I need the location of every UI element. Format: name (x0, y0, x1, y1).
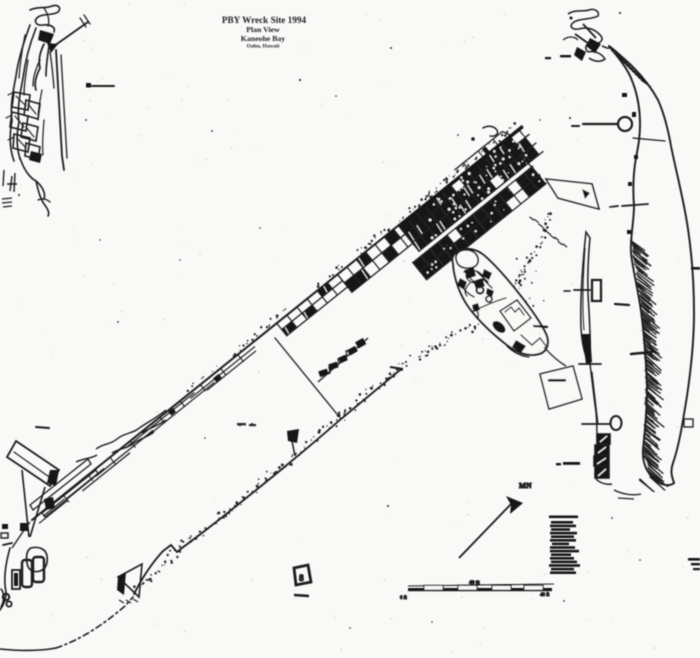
svg-text:Oahu, Hawaii: Oahu, Hawaii (247, 44, 280, 50)
svg-text:40 ft: 40 ft (540, 593, 550, 598)
svg-text:0 ft: 0 ft (400, 596, 407, 601)
svg-text:MN: MN (519, 481, 532, 490)
svg-text:Plan View: Plan View (246, 25, 280, 34)
svg-text:Kaneohe Bay: Kaneohe Bay (241, 34, 286, 43)
svg-text:40 ft: 40 ft (469, 580, 480, 586)
svg-text:8: 8 (299, 574, 304, 584)
svg-text:PBY Wreck Site 1994: PBY Wreck Site 1994 (222, 15, 307, 25)
